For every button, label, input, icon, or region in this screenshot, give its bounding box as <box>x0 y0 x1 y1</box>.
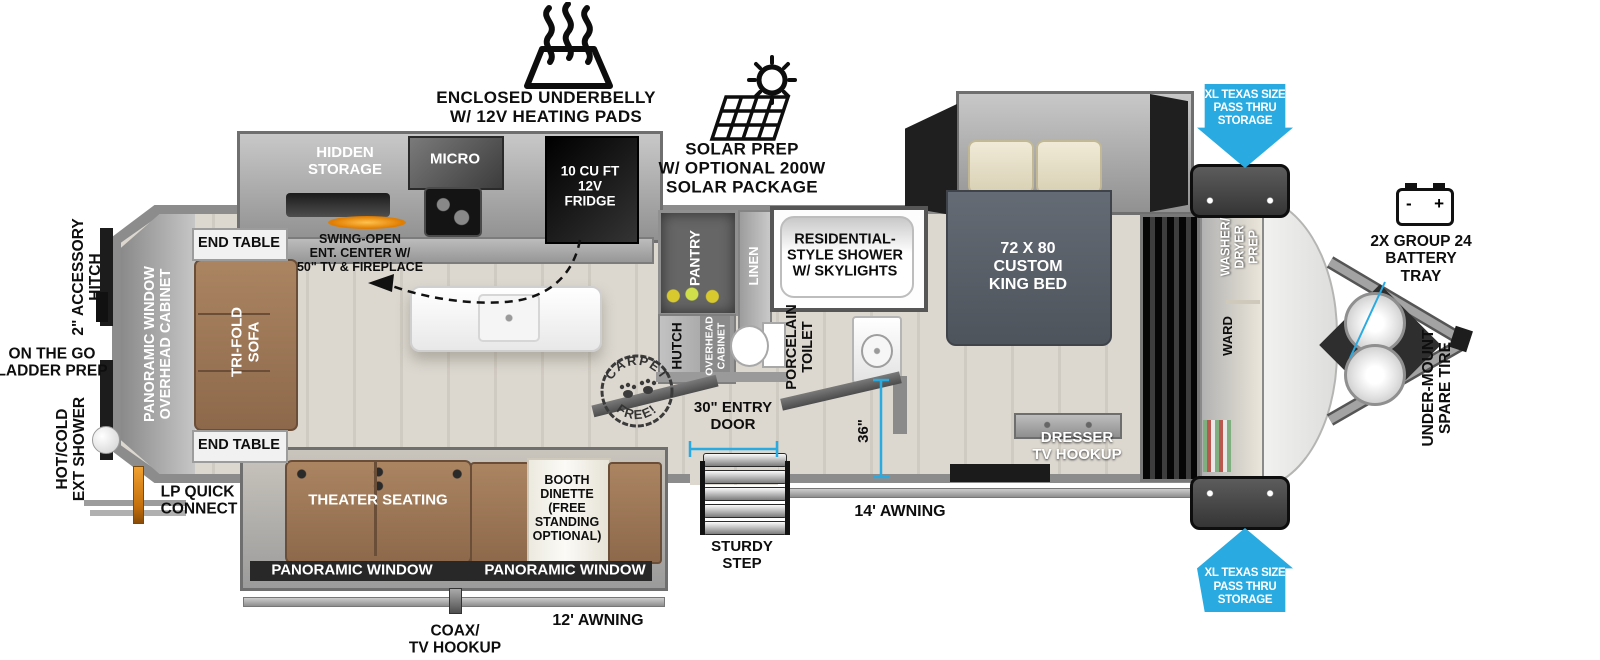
battery-plus: + <box>1434 194 1444 214</box>
porcelain-toilet-label: PORCELAIN TOILET <box>785 304 817 389</box>
hidden-storage-label: HIDDEN STORAGE <box>308 145 382 179</box>
king-bed-label: 72 X 80 CUSTOM KING BED <box>989 240 1067 294</box>
dinette-bench-right <box>608 462 662 564</box>
pantry-label: PANTRY <box>687 230 702 286</box>
pass-thru-top-label: XL TEXAS SIZE PASS THRU STORAGE <box>1205 84 1286 134</box>
paw-print-icon <box>620 379 656 398</box>
microwave-label: MICRO <box>430 152 480 169</box>
dim-36-label: 36" <box>856 419 873 443</box>
ext-shower-label: HOT/COLD EXT SHOWER <box>54 397 88 501</box>
compartment-shelf <box>1226 300 1260 304</box>
hanging-clothes-icon <box>1203 420 1231 472</box>
pantry-cans-icon <box>664 286 726 304</box>
linen-label: LINEN <box>747 247 761 286</box>
entry-door-label: 30" ENTRY DOOR <box>694 400 772 434</box>
tri-fold-sofa-label: TRI-FOLD SOFA <box>230 307 263 377</box>
spare-tire-2 <box>1344 344 1406 406</box>
spare-tire-label: UNDER-MOUNT SPARE TIRE <box>1420 329 1454 446</box>
pass-thru-bottom-label: XL TEXAS SIZE PASS THRU STORAGE <box>1205 562 1286 612</box>
ext-shower-knob-icon <box>92 426 120 454</box>
fireplace-glow <box>328 216 406 229</box>
bedroom-wall-stub <box>893 376 907 434</box>
wardrobe-slats <box>1140 214 1200 482</box>
sturdy-step-label: STURDY STEP <box>711 539 773 573</box>
bed-slide-window-right <box>1150 94 1188 212</box>
dinette-bench-left <box>470 462 530 564</box>
exterior-tv-strip <box>950 464 1050 482</box>
booth-dinette-label: BOOTH DINETTE (FREE STANDING OPTIONAL) <box>533 473 602 543</box>
lp-connect-label: LP QUICK CONNECT <box>161 484 238 519</box>
solar-prep-icon <box>692 55 800 145</box>
ent-center-label: SWING-OPEN ENT. CENTER W/ 50" TV & FIREP… <box>297 232 423 274</box>
awning-12-label: 12' AWNING <box>552 612 643 630</box>
battery-minus: - <box>1406 194 1412 214</box>
panoramic-window-right-label: PANORAMIC WINDOW <box>484 563 645 580</box>
shower-label: RESIDENTIAL- STYLE SHOWER W/ SKYLIGHTS <box>787 232 903 281</box>
pillow-right <box>1036 140 1102 194</box>
lp-quick-connect-icon <box>133 466 144 524</box>
pass-thru-pad-bottom <box>1190 476 1290 530</box>
entry-steps <box>703 453 787 539</box>
battery-icon: - + <box>1396 188 1454 226</box>
awning-14-bar <box>768 488 1246 498</box>
overhead-cabinet-label: OVERHEAD CABINET <box>704 316 727 376</box>
ladder-prep-label: ON THE GO LADDER PREP <box>0 346 108 381</box>
awning-14-label: 14' AWNING <box>854 503 945 521</box>
panoramic-window-left-label: PANORAMIC WINDOW <box>271 563 432 580</box>
carpet-free-bottom-text: FREE! <box>614 401 660 422</box>
range-hood <box>286 193 390 217</box>
theater-seating-label: THEATER SEATING <box>308 493 447 510</box>
heating-pads-icon <box>497 2 619 90</box>
island-sink <box>478 294 540 342</box>
coax-label: COAX/ TV HOOKUP <box>409 623 501 658</box>
battery-tray-label: 2X GROUP 24 BATTERY TRAY <box>1370 233 1471 285</box>
floorplan-canvas: PANORAMIC WINDOW OVERHEAD CABINET END TA… <box>0 0 1600 660</box>
pass-thru-pad-top <box>1190 164 1290 218</box>
end-table-top-label: END TABLE <box>198 235 280 251</box>
solar-prep-label: SOLAR PREP W/ OPTIONAL 200W SOLAR PACKAG… <box>659 139 826 196</box>
vanity-sink <box>861 334 893 368</box>
ward-label: WARD <box>1221 316 1235 356</box>
fridge-label: 10 CU FT 12V FRIDGE <box>561 163 620 208</box>
coax-connector-icon <box>449 588 462 614</box>
toilet-bowl <box>730 325 769 367</box>
carpet-free-stamp: CARPET FREE! <box>598 352 676 430</box>
washer-dryer-prep-label: WASHER/ DRYER PREP <box>1219 218 1260 276</box>
svg-text:FREE!: FREE! <box>614 401 660 422</box>
dresser-label: DRESSER TV HOOKUP <box>1032 430 1121 464</box>
enclosed-underbelly-label: ENCLOSED UNDERBELLY W/ 12V HEATING PADS <box>436 88 656 126</box>
rear-panoramic-overhead-label: PANORAMIC WINDOW OVERHEAD CABINET <box>143 266 175 422</box>
theater-seating <box>285 460 472 564</box>
stove-icon <box>424 187 482 237</box>
accessory-hitch-label: 2" ACCESSORY HITCH <box>70 218 104 335</box>
end-table-bottom-label: END TABLE <box>198 437 280 453</box>
pillow-left <box>968 140 1034 194</box>
